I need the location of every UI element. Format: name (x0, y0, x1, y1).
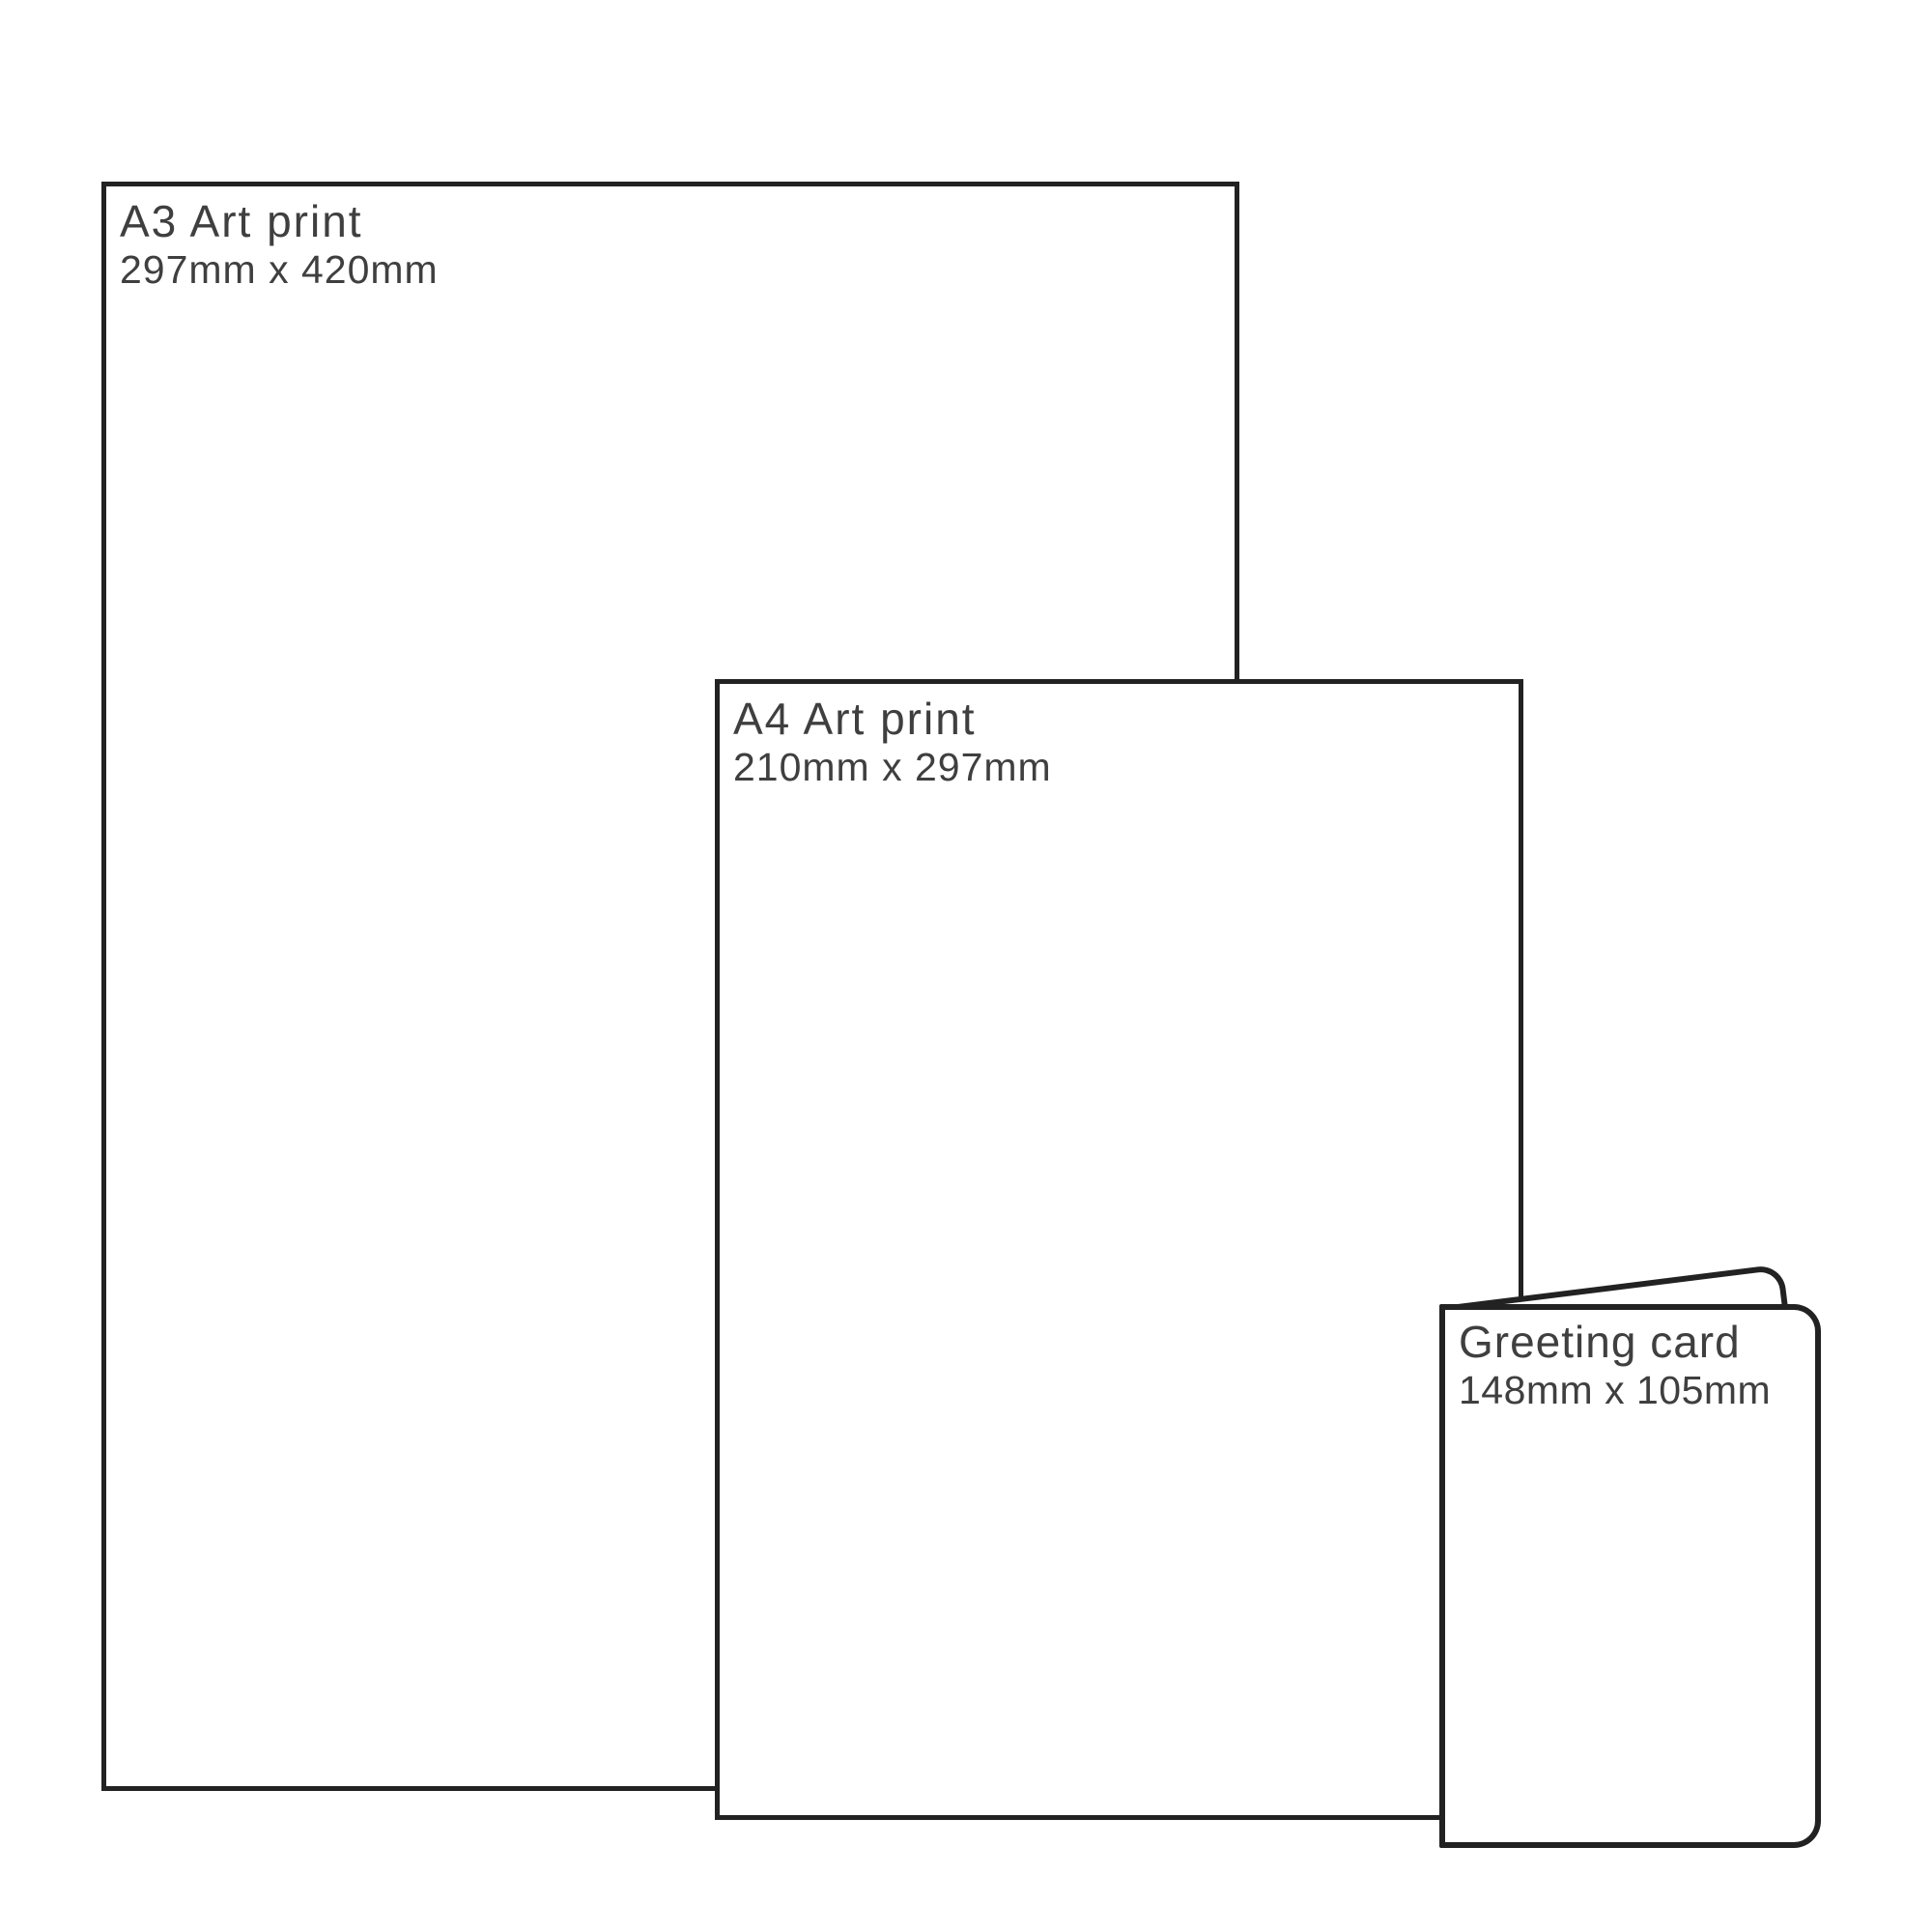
greeting-card-title: Greeting card (1459, 1316, 1811, 1368)
greeting-card-dimensions: 148mm x 105mm (1459, 1368, 1811, 1413)
a4-title: A4 Art print (733, 693, 1513, 745)
a3-title: A3 Art print (120, 195, 1229, 247)
a4-dimensions: 210mm x 297mm (733, 745, 1513, 790)
a3-label: A3 Art print 297mm x 420mm (106, 186, 1235, 293)
greeting-card-label: Greeting card 148mm x 105mm (1445, 1310, 1815, 1413)
a3-dimensions: 297mm x 420mm (120, 247, 1229, 293)
greeting-card-front-panel: Greeting card 148mm x 105mm (1439, 1304, 1821, 1848)
size-comparison-diagram: A3 Art print 297mm x 420mm A4 Art print … (0, 0, 1932, 1932)
a4-label: A4 Art print 210mm x 297mm (720, 684, 1519, 790)
a4-sheet: A4 Art print 210mm x 297mm (715, 679, 1523, 1820)
